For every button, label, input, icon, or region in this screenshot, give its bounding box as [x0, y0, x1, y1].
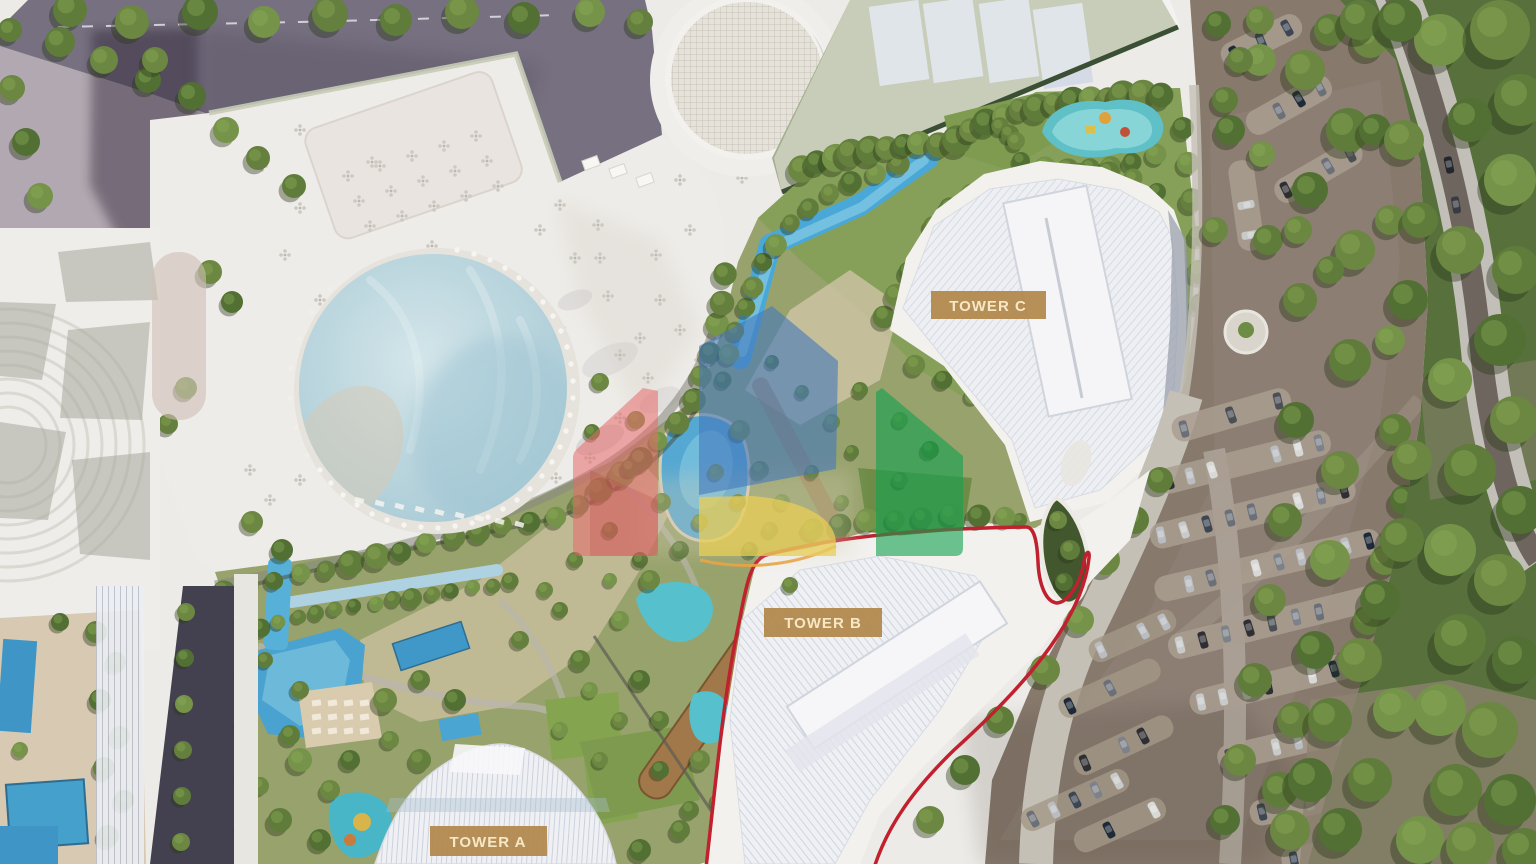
svg-text:TOWER A: TOWER A [450, 834, 527, 851]
svg-text:TOWER C: TOWER C [949, 298, 1027, 315]
svg-text:TOWER B: TOWER B [784, 615, 862, 632]
